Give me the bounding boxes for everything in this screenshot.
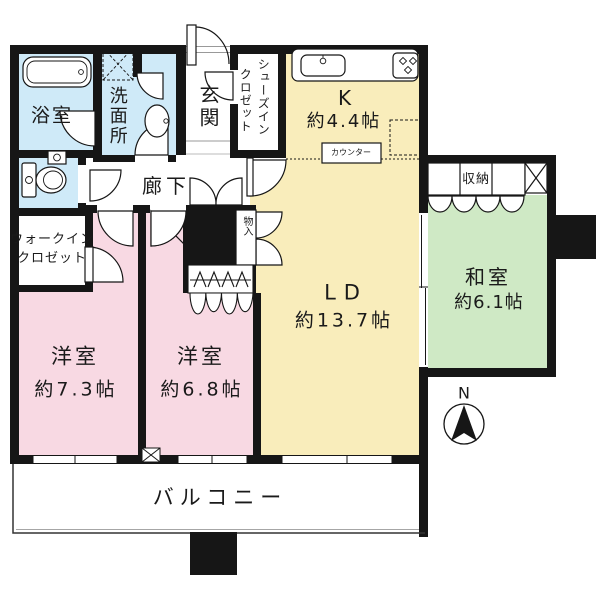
storage-label: 収納 [462,172,490,188]
room-label-kitchen: K [338,86,352,110]
paper-holder [48,151,66,164]
balcony-pillar [190,532,237,575]
room-size-bedroom2: 約6.8帖 [160,379,243,402]
living-door-leaf [247,158,253,196]
bedroom1-floor [19,292,138,455]
walk-in-closet-line1: ウォークイン [10,231,94,250]
room-size-japanese: 約6.1帖 [454,292,524,314]
walk-in-closet-line2: クロゼット [10,250,94,269]
hallway-label: 廊下 [142,174,190,198]
balcony-right-wall [419,464,428,537]
toilet-tank [22,163,36,197]
room-label-shoe-closet-line1: シューズイン [256,58,270,136]
floorplan: 浴室 洗面所 玄関 シューズイン クロゼット K 約4.4帖 カウンター 廊下 … [0,0,600,600]
room-label-bathroom: 浴室 [31,105,73,128]
room-size-living: 約13.7帖 [295,310,393,333]
hall-double-door-left [190,178,216,205]
room-label-living: LD [324,280,368,305]
compass-icon [444,404,484,444]
balcony-label: バルコニー [153,485,288,510]
room-label-bedroom1: 洋室 [51,344,99,369]
counter-label: カウンター [331,148,371,158]
room-size-bedroom1: 約7.3帖 [34,379,117,402]
toilet-door-arc [90,170,121,201]
sliding-door-gap [419,213,428,367]
entrance-door-leaf [187,25,196,65]
room-label-japanese: 和室 [465,265,511,289]
room-size-kitchen: 約4.4帖 [307,111,382,133]
room-label-bedroom2: 洋室 [177,344,225,369]
washbasin-icon [145,105,169,137]
room-label-shoe-closet-line2: クロゼット [238,68,252,133]
storage-small-label: 物入 [240,216,252,236]
living-window [282,456,392,464]
compass-north-label: N [458,383,470,402]
pillar-protrusion [551,215,596,259]
room-label-entrance: 玄関 [196,84,220,130]
hall-double-door-right [216,178,242,205]
room-label-washroom: 洗面所 [106,86,128,146]
walk-in-closet-label: ウォークイン クロゼット [10,231,94,269]
